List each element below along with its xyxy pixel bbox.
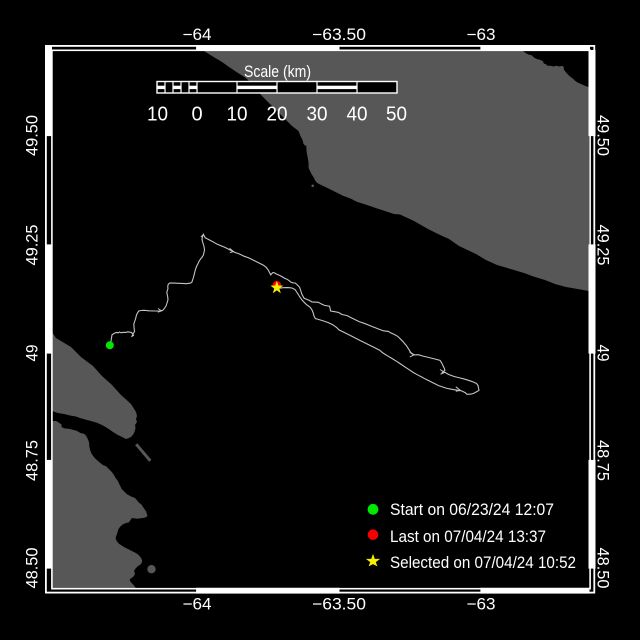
svg-text:−63.50: −63.50 <box>312 26 366 44</box>
svg-text:−63.50: −63.50 <box>312 596 366 614</box>
svg-text:Selected on 07/04/24 10:52: Selected on 07/04/24 10:52 <box>390 554 576 572</box>
svg-text:20: 20 <box>267 104 288 126</box>
svg-text:48.75: 48.75 <box>594 440 612 481</box>
svg-text:49.25: 49.25 <box>594 225 612 266</box>
svg-text:Scale (km): Scale (km) <box>244 63 311 81</box>
svg-text:10: 10 <box>147 104 168 126</box>
svg-text:49: 49 <box>594 345 612 362</box>
svg-text:−63: −63 <box>467 596 496 614</box>
svg-text:40: 40 <box>347 104 368 126</box>
svg-text:10: 10 <box>227 104 248 126</box>
svg-text:50: 50 <box>386 104 407 126</box>
svg-text:49.50: 49.50 <box>594 115 612 156</box>
svg-text:48.50: 48.50 <box>594 548 612 589</box>
svg-text:Start on 06/23/24 12:07: Start on 06/23/24 12:07 <box>390 501 554 519</box>
svg-text:−64: −64 <box>183 596 212 614</box>
svg-text:49.50: 49.50 <box>24 115 42 156</box>
svg-text:−64: −64 <box>183 26 212 44</box>
svg-text:48.75: 48.75 <box>24 440 42 481</box>
svg-text:30: 30 <box>307 104 328 126</box>
svg-text:0: 0 <box>191 104 202 126</box>
svg-text:49: 49 <box>24 345 42 362</box>
svg-text:49.25: 49.25 <box>24 225 42 266</box>
svg-text:Last on 07/04/24 13:37: Last on 07/04/24 13:37 <box>390 528 546 546</box>
svg-text:48.50: 48.50 <box>24 548 42 589</box>
svg-text:−63: −63 <box>467 26 496 44</box>
